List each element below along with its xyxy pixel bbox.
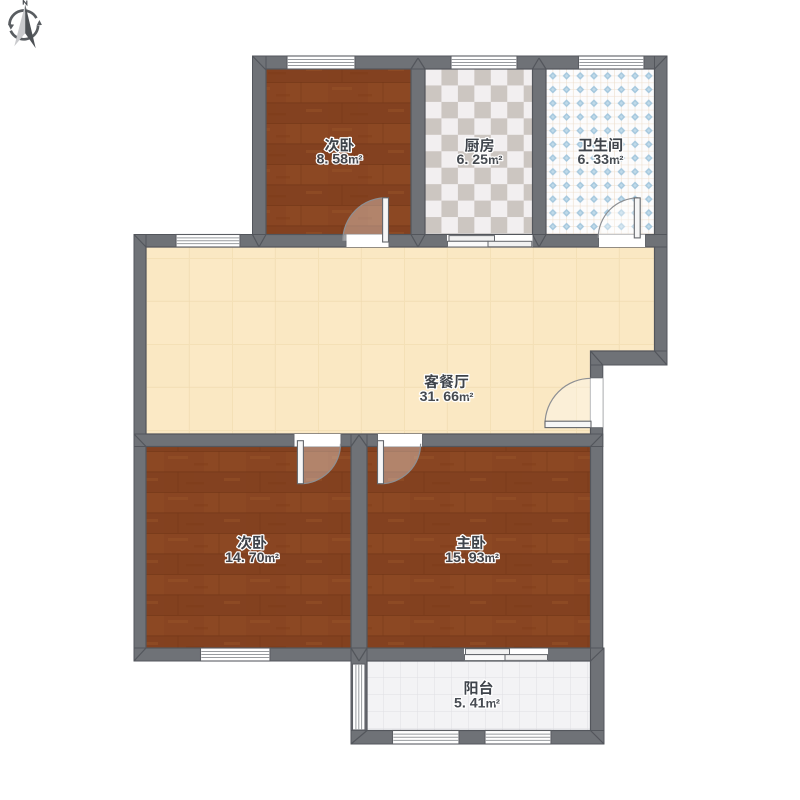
svg-text:14. 70m²: 14. 70m² <box>225 550 279 566</box>
svg-text:6. 33m²: 6. 33m² <box>578 152 624 168</box>
svg-text:31. 66m²: 31. 66m² <box>420 389 474 405</box>
svg-text:8. 58m²: 8. 58m² <box>317 152 363 168</box>
svg-text:5. 41m²: 5. 41m² <box>454 695 500 711</box>
svg-text:6. 25m²: 6. 25m² <box>457 152 503 168</box>
svg-text:15. 93m²: 15. 93m² <box>445 550 499 566</box>
